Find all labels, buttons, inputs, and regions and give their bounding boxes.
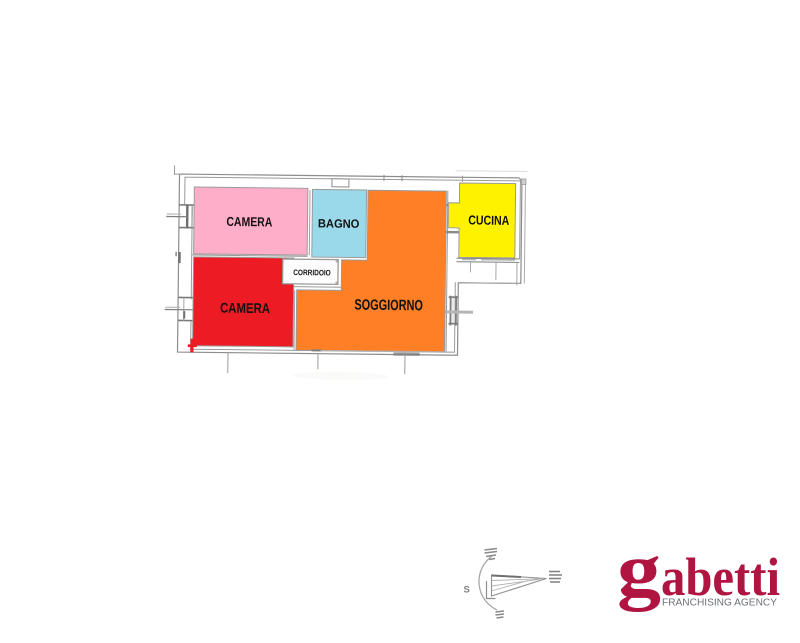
svg-text:S: S: [464, 585, 470, 596]
svg-text:BAGNO: BAGNO: [318, 216, 360, 230]
svg-text:CORRIDOIO: CORRIDOIO: [293, 268, 331, 277]
svg-text:CAMERA: CAMERA: [220, 300, 270, 317]
svg-text:SOGGIORNO: SOGGIORNO: [354, 297, 423, 315]
svg-text:g: g: [617, 528, 661, 612]
svg-text:FRANCHISING AGENCY: FRANCHISING AGENCY: [662, 598, 777, 609]
svg-text:CAMERA: CAMERA: [226, 214, 273, 230]
svg-text:CUCINA: CUCINA: [468, 212, 510, 227]
